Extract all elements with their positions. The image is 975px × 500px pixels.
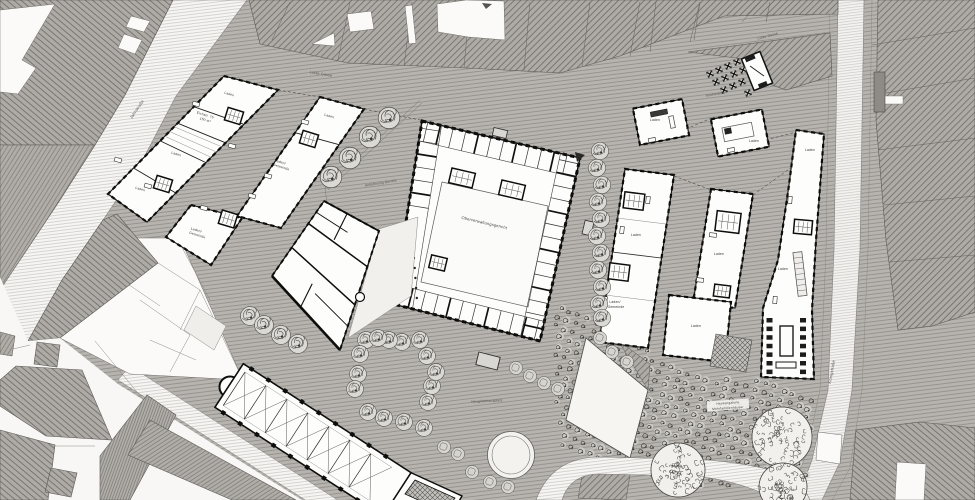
svg-text:Laden: Laden [691, 324, 701, 328]
svg-text:Laden: Laden [650, 118, 660, 122]
svg-text:Laden: Laden [631, 233, 641, 237]
svg-text:Laden/: Laden/ [609, 300, 620, 304]
svg-text:Laden: Laden [805, 148, 815, 152]
svg-text:Gemeinde: Gemeinde [608, 305, 625, 309]
svg-text:Laden: Laden [714, 252, 724, 256]
svg-text:Laden: Laden [749, 139, 759, 143]
svg-text:Laden: Laden [778, 267, 788, 271]
